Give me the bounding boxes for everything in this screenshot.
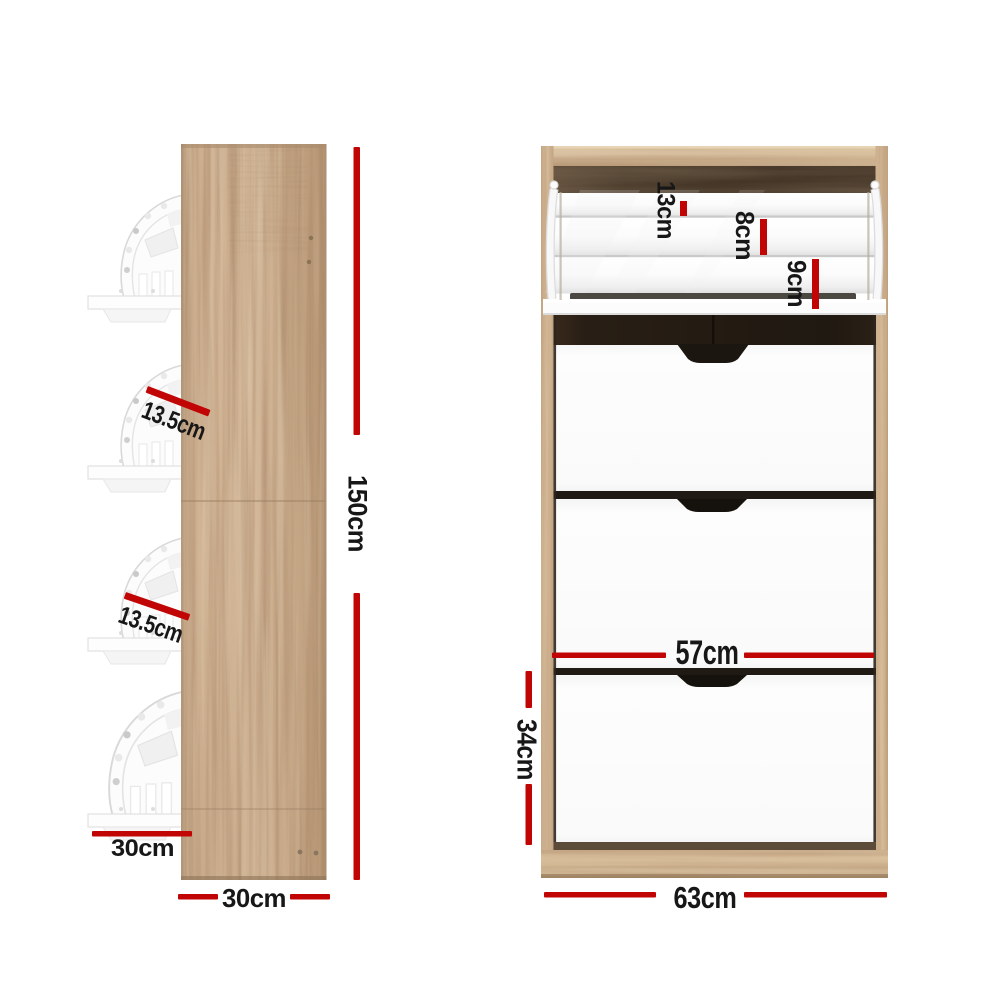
svg-text:30cm: 30cm [111, 835, 174, 862]
svg-text:63cm: 63cm [674, 880, 737, 915]
svg-text:34cm: 34cm [512, 719, 543, 780]
svg-text:30cm: 30cm [222, 883, 286, 913]
svg-text:8cm: 8cm [730, 211, 760, 260]
svg-text:13cm: 13cm [652, 181, 680, 239]
svg-text:150cm: 150cm [343, 475, 373, 552]
svg-text:57cm: 57cm [676, 634, 739, 672]
svg-text:9cm: 9cm [782, 260, 812, 307]
